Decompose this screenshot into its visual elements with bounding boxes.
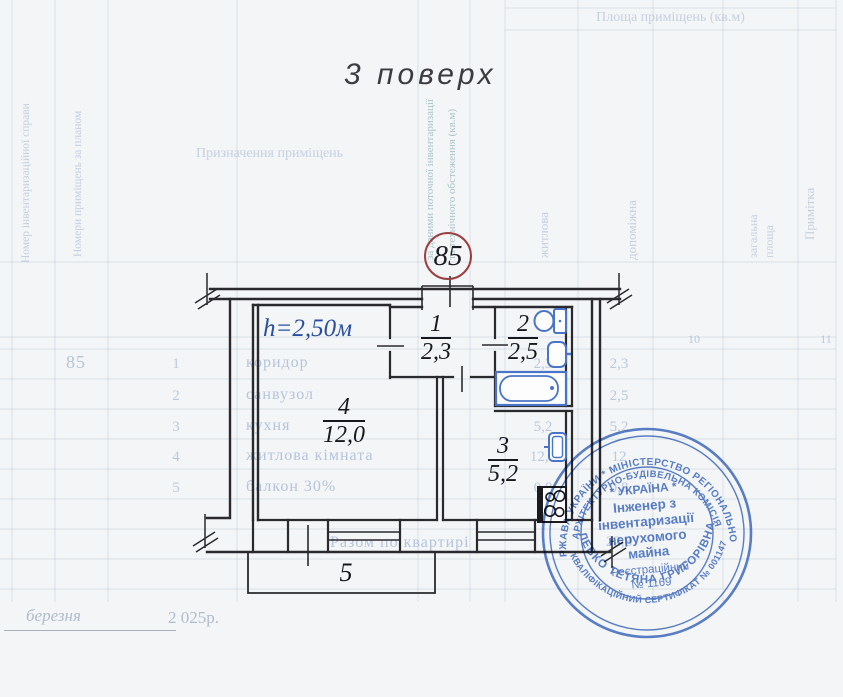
room-area: 5,2 — [488, 461, 518, 489]
room-area: 12,0 — [323, 422, 365, 450]
stamp-center-title-4: майна — [627, 543, 670, 562]
room-label-1: 1 2,3 — [421, 312, 451, 367]
engineer-stamp: ДЕРЖАВА УКРАЇНИ * МІНІСТЕРСТВО РЕГІОНАЛЬ… — [517, 403, 777, 663]
window-symbols — [328, 532, 535, 540]
room-label-3: 3 5,2 — [488, 434, 518, 489]
room-number: 1 — [421, 312, 451, 339]
toilet-icon — [535, 309, 567, 333]
stamp-seal-icon: ДЕРЖАВА УКРАЇНИ * МІНІСТЕРСТВО РЕГІОНАЛЬ… — [517, 403, 777, 663]
apartment-number: 85 — [434, 242, 463, 271]
room-area: 2,3 — [421, 339, 451, 367]
scanned-floor-plan-page: Площа приміщень (кв.м) Номер інвентариза… — [0, 0, 843, 697]
bathtub-icon — [496, 372, 566, 405]
room-area: 2,5 — [508, 339, 538, 367]
room-number: 2 — [508, 312, 538, 339]
room-label-2: 2 2,5 — [508, 312, 538, 367]
stamp-center-reg-number: № 1169 — [631, 576, 672, 591]
page-title: 3 поверх — [344, 58, 497, 92]
room-number: 4 — [323, 395, 365, 422]
apartment-number-badge: 85 — [424, 232, 472, 280]
ceiling-height-label: h=2,50м — [263, 315, 352, 343]
room-label-4: 4 12,0 — [323, 395, 365, 450]
balcony-label: 5 — [340, 558, 353, 588]
room-number: 3 — [488, 434, 518, 461]
washbasin-icon — [548, 342, 571, 367]
